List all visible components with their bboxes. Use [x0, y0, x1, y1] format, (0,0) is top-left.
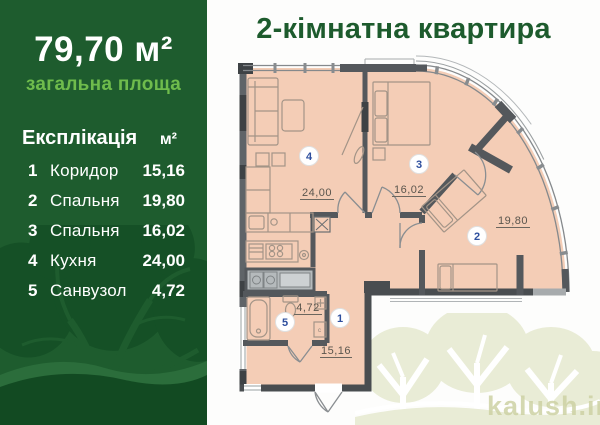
room-name: Коридор [50, 161, 119, 181]
room-area-label-2: 19,80 [498, 215, 528, 227]
table-row: 4 Кухня 24,00 [0, 251, 207, 281]
room-name: Спальня [50, 221, 120, 241]
room-number: 5 [28, 281, 50, 301]
explication-table: 1 Коридор 15,16 2 Спальня 19,80 3 Спальн… [0, 161, 207, 311]
explication-title: Експлікація [22, 127, 137, 150]
table-row: 5 Санвузол 4,72 [0, 281, 207, 311]
room-badge-5: 5 [276, 313, 295, 332]
sidebar: 79,70 м² загальна площа Експлікація м² 1… [0, 0, 207, 425]
room-name: Санвузол [50, 281, 127, 301]
floor-plan: c 24,00 16,02 19,80 4,72 15,16 4 3 2 1 [230, 55, 590, 417]
room-area-label-5: 4,72 [296, 302, 319, 314]
room-area: 4,72 [152, 281, 185, 301]
room-name: Кухня [50, 251, 97, 271]
table-row: 1 Коридор 15,16 [0, 161, 207, 191]
room-area-label-3: 16,02 [394, 184, 424, 196]
room-number: 2 [28, 191, 50, 211]
room-name: Спальня [50, 191, 120, 211]
duct-closet-icon [314, 217, 330, 232]
heater-letter: c [318, 328, 321, 334]
svg-text:5: 5 [282, 317, 288, 329]
explication-unit: м² [160, 131, 177, 149]
table-row: 2 Спальня 19,80 [0, 191, 207, 221]
total-area-label: загальна площа [0, 74, 207, 96]
explication-header: Експлікація м² [22, 127, 177, 150]
room-badge-2: 2 [468, 227, 487, 246]
total-area-value: 79,70 м² [0, 32, 207, 67]
table-row: 3 Спальня 16,02 [0, 221, 207, 251]
svg-text:2: 2 [474, 231, 480, 243]
wall-column [362, 102, 369, 132]
room-area-label-1: 15,16 [321, 345, 351, 357]
page-title: 2-кімнатна квартира [207, 13, 600, 46]
utility-shaft [246, 269, 314, 291]
room-number: 3 [28, 221, 50, 241]
svg-text:4: 4 [306, 151, 313, 163]
room-area-label-4: 24,00 [302, 187, 332, 199]
room-badge-1: 1 [331, 309, 350, 328]
room-badge-4: 4 [300, 147, 319, 166]
room-area: 15,16 [142, 161, 185, 181]
room-badge-3: 3 [410, 155, 429, 174]
svg-text:3: 3 [416, 159, 422, 171]
room-area: 19,80 [142, 191, 185, 211]
room-number: 4 [28, 251, 50, 271]
svg-text:1: 1 [337, 313, 343, 325]
room-area: 24,00 [142, 251, 185, 271]
room-area: 16,02 [142, 221, 185, 241]
room-number: 1 [28, 161, 50, 181]
